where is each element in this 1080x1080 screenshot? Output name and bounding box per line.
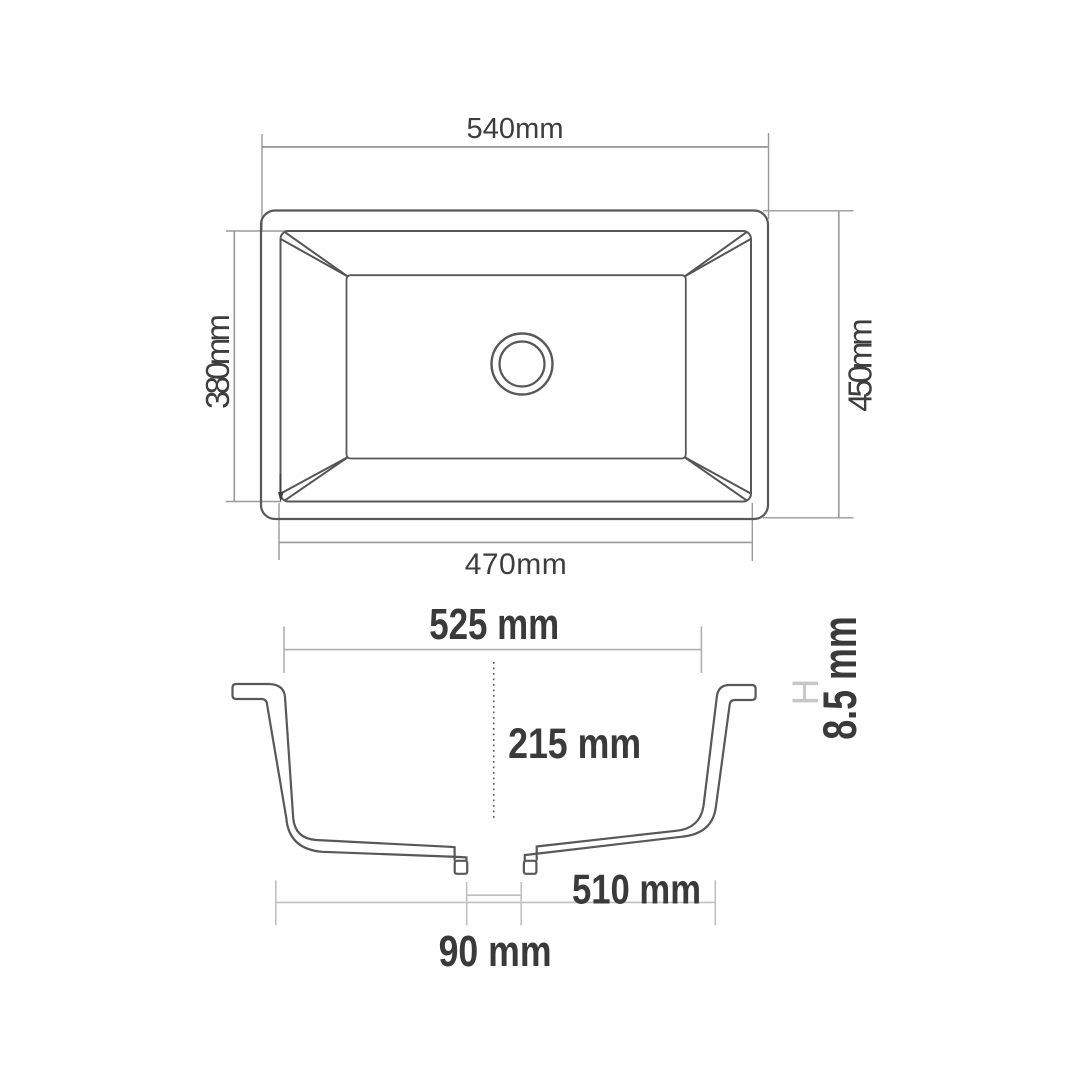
svg-text:380mm: 380mm: [199, 314, 236, 409]
svg-text:470mm: 470mm: [465, 548, 567, 581]
svg-text:215 mm: 215 mm: [508, 720, 641, 768]
svg-text:540mm: 540mm: [467, 113, 564, 145]
svg-text:90 mm: 90 mm: [439, 927, 552, 976]
svg-text:8.5 mm: 8.5 mm: [813, 616, 866, 740]
svg-text:525 mm: 525 mm: [429, 600, 559, 649]
svg-text:510 mm: 510 mm: [572, 866, 701, 913]
svg-text:450mm: 450mm: [842, 318, 879, 411]
